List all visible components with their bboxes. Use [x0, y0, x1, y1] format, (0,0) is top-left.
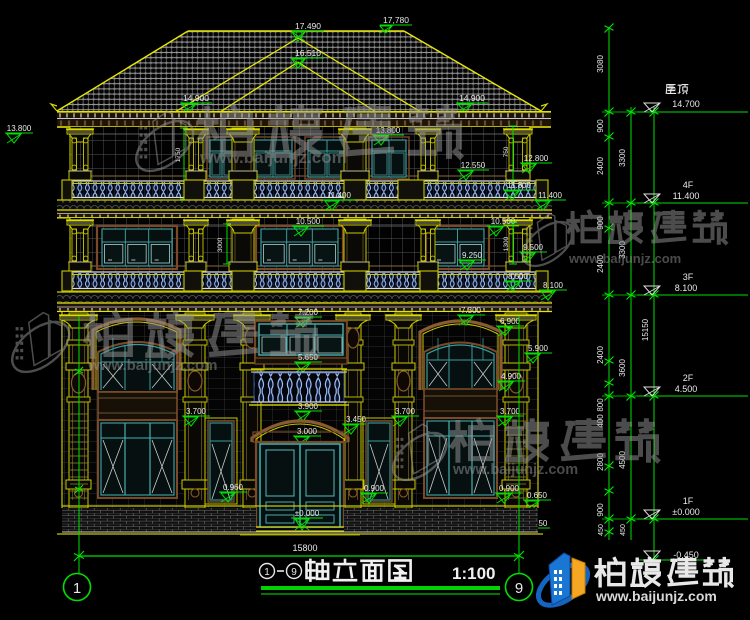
svg-text:12.550: 12.550 — [461, 161, 486, 170]
svg-text:14.700: 14.700 — [672, 99, 700, 109]
svg-text:3.700: 3.700 — [395, 407, 416, 416]
svg-text:17.490: 17.490 — [295, 21, 321, 31]
svg-text:±0.000: ±0.000 — [672, 507, 699, 517]
svg-text:750: 750 — [503, 146, 510, 157]
svg-text:1: 1 — [264, 567, 270, 578]
svg-text:11.400: 11.400 — [327, 191, 351, 200]
svg-text:0.960: 0.960 — [223, 483, 244, 492]
svg-text:0.900: 0.900 — [499, 484, 520, 493]
svg-text:4F: 4F — [683, 180, 694, 190]
svg-text:8.500: 8.500 — [508, 272, 529, 281]
svg-text:±0.000: ±0.000 — [295, 509, 320, 518]
svg-text:1300: 1300 — [503, 236, 510, 251]
svg-text:1:100: 1:100 — [452, 564, 495, 583]
svg-text:0.900: 0.900 — [364, 484, 385, 493]
svg-text:13.800: 13.800 — [7, 124, 32, 133]
svg-text:3080: 3080 — [596, 55, 605, 73]
svg-text:2F: 2F — [683, 373, 694, 383]
svg-text:8.100: 8.100 — [543, 281, 564, 290]
svg-text:900: 900 — [596, 119, 605, 133]
svg-text:3F: 3F — [683, 272, 694, 282]
svg-text:6.900: 6.900 — [500, 317, 521, 326]
svg-text:3600: 3600 — [618, 359, 627, 377]
svg-text:www.baijunjz.com: www.baijunjz.com — [87, 357, 217, 374]
svg-text:8.100: 8.100 — [675, 283, 698, 293]
svg-text:www.baijunjz.com: www.baijunjz.com — [199, 148, 347, 167]
svg-text:14,900: 14,900 — [183, 93, 209, 103]
svg-text:3.000: 3.000 — [297, 427, 318, 436]
svg-text:12.800: 12.800 — [524, 154, 549, 163]
svg-text:3.900: 3.900 — [298, 402, 319, 411]
svg-text:4.900: 4.900 — [501, 372, 522, 381]
svg-text:11.400: 11.400 — [538, 191, 562, 200]
svg-text:www.baijunjz.com: www.baijunjz.com — [568, 251, 681, 266]
svg-text:1F: 1F — [683, 496, 694, 506]
svg-text:2400: 2400 — [596, 157, 605, 175]
svg-text:900: 900 — [596, 503, 605, 517]
svg-text:9.250: 9.250 — [462, 251, 483, 260]
svg-text:16.510: 16.510 — [295, 48, 321, 58]
svg-text:17,780: 17,780 — [383, 15, 409, 25]
svg-text:14,900: 14,900 — [459, 93, 485, 103]
svg-text:800: 800 — [596, 398, 605, 412]
svg-text:450: 450 — [620, 524, 627, 536]
svg-text:15150: 15150 — [641, 318, 650, 341]
svg-text:2400: 2400 — [596, 346, 605, 364]
svg-text:9: 9 — [291, 567, 297, 578]
svg-text:www.baijunjz.com: www.baijunjz.com — [595, 588, 717, 604]
svg-text:450: 450 — [598, 524, 605, 536]
svg-text:15800: 15800 — [292, 543, 317, 553]
svg-text:11.800: 11.800 — [507, 181, 531, 190]
svg-text:4.500: 4.500 — [675, 384, 698, 394]
svg-text:5.900: 5.900 — [528, 344, 549, 353]
svg-text:3300: 3300 — [618, 149, 627, 167]
svg-text:10.500: 10.500 — [296, 217, 321, 226]
svg-text:3000: 3000 — [217, 237, 224, 252]
svg-text:7.300: 7.300 — [461, 306, 482, 315]
svg-text:9: 9 — [515, 580, 523, 597]
svg-text:1: 1 — [73, 580, 81, 597]
svg-text:11.400: 11.400 — [673, 191, 700, 201]
svg-text:3.700: 3.700 — [186, 407, 207, 416]
svg-text:www.baijunjz.com: www.baijunjz.com — [452, 462, 578, 478]
svg-text:0.650: 0.650 — [527, 491, 548, 500]
svg-text:3.700: 3.700 — [500, 407, 521, 416]
